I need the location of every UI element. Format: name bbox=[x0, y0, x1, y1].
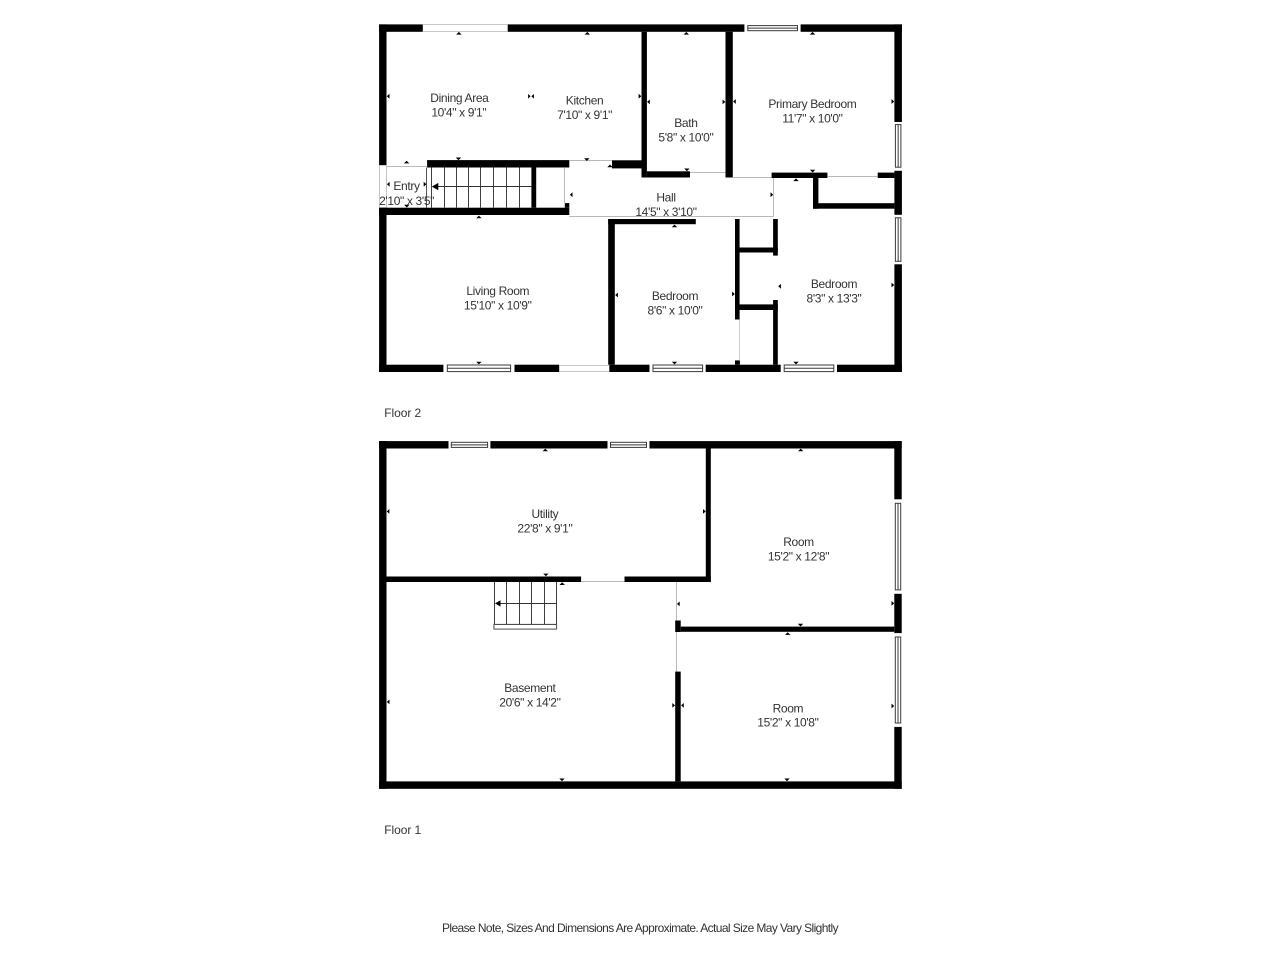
svg-text:14'5" x 3'10": 14'5" x 3'10" bbox=[635, 205, 696, 219]
svg-text:Hall: Hall bbox=[656, 191, 675, 205]
svg-text:Dining Area: Dining Area bbox=[430, 91, 489, 105]
svg-text:11'7" x 10'0": 11'7" x 10'0" bbox=[782, 111, 842, 125]
svg-text:2'10" x 3'5": 2'10" x 3'5" bbox=[379, 194, 434, 208]
svg-text:Kitchen: Kitchen bbox=[566, 94, 604, 108]
svg-text:Bedroom: Bedroom bbox=[811, 277, 858, 291]
svg-text:5'8" x 10'0": 5'8" x 10'0" bbox=[658, 130, 713, 144]
svg-text:Utility: Utility bbox=[531, 507, 558, 521]
svg-text:Living Room: Living Room bbox=[466, 284, 529, 298]
svg-text:Entry: Entry bbox=[393, 179, 420, 193]
svg-text:Room: Room bbox=[773, 702, 804, 716]
svg-text:Basement: Basement bbox=[504, 681, 556, 695]
svg-text:Please Note, Sizes And Dimensi: Please Note, Sizes And Dimensions Are Ap… bbox=[442, 921, 839, 935]
svg-text:Room: Room bbox=[783, 535, 814, 549]
svg-text:20'6" x 14'2": 20'6" x 14'2" bbox=[499, 696, 560, 710]
svg-text:7'10" x 9'1": 7'10" x 9'1" bbox=[557, 108, 612, 122]
svg-text:8'6" x 10'0": 8'6" x 10'0" bbox=[648, 304, 703, 318]
svg-text:15'2" x 12'8": 15'2" x 12'8" bbox=[768, 549, 829, 563]
svg-text:15'10" x 10'9": 15'10" x 10'9" bbox=[464, 299, 532, 313]
svg-text:Floor 2: Floor 2 bbox=[384, 406, 421, 420]
svg-text:22'8" x 9'1": 22'8" x 9'1" bbox=[517, 522, 572, 536]
svg-text:10'4" x 9'1": 10'4" x 9'1" bbox=[431, 105, 486, 119]
svg-text:Primary Bedroom: Primary Bedroom bbox=[768, 97, 856, 111]
svg-text:8'3" x 13'3": 8'3" x 13'3" bbox=[807, 292, 862, 306]
svg-text:Bath: Bath bbox=[674, 116, 697, 130]
svg-text:Bedroom: Bedroom bbox=[652, 289, 699, 303]
svg-text:15'2" x 10'8": 15'2" x 10'8" bbox=[757, 716, 818, 730]
svg-text:Floor 1: Floor 1 bbox=[384, 823, 421, 837]
